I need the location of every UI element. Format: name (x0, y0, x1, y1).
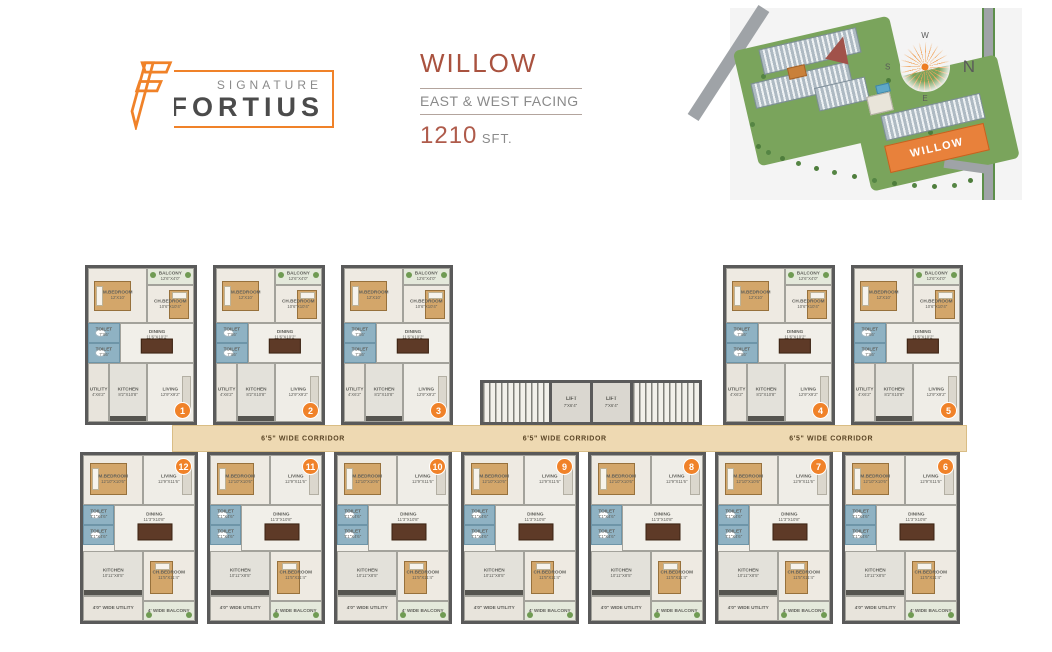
unit-number-badge: 9 (556, 458, 573, 475)
apartment-unit: M.BEDROOM12'X10' BALCONY12'6"X4'0" CH.BE… (85, 265, 197, 425)
kitchen: KITCHEN8'2"X10'8" (109, 363, 147, 422)
room-label: DINING11'6"X10'2" (767, 329, 823, 359)
unit-number-badge: 1 (174, 402, 191, 419)
utility-strip: 4'0" WIDE UTILITY (210, 596, 270, 621)
room-label: DINING11'3"X10'8" (124, 511, 185, 546)
balcony-strip: 4' WIDE BALCONY (143, 601, 195, 621)
kitchen-counter (465, 590, 523, 595)
facing-subtitle: EAST & WEST FACING (420, 93, 579, 109)
room-label: TOILET7'1"X4'6" (341, 508, 364, 522)
room-label: DINING11'6"X10'2" (385, 329, 441, 359)
kitchen: KITCHEN8'2"X10'8" (747, 363, 785, 422)
kitchen-counter (876, 416, 912, 421)
unit-number-badge: 3 (430, 402, 447, 419)
kitchen: KITCHEN10'11"X8'5" (464, 551, 524, 596)
children-bedroom: CH.BEDROOM11'5"X11'4" (270, 551, 322, 601)
room-label: CH.BEDROOM11'5"X11'4" (531, 558, 570, 595)
balcony-strip: 4' WIDE BALCONY (651, 601, 703, 621)
unit-number-badge: 7 (810, 458, 827, 475)
kitchen: KITCHEN10'11"X8'5" (718, 551, 778, 596)
room-label: UTILITY4'X6'2" (91, 371, 106, 415)
toilet: TOILET7'1"X4'6" (718, 525, 749, 545)
toilet: TOILET7'1"X4'6" (591, 505, 622, 525)
toilet: TOILET7'X6' (216, 343, 248, 363)
room-label: M.BEDROOM12'10"X10'6" (90, 461, 136, 498)
compass-icon: W S E N (892, 34, 958, 100)
toilet: TOILET7'1"X4'6" (464, 525, 495, 545)
room-label: KITCHEN8'2"X10'8" (242, 371, 270, 415)
room-label: 4'0" WIDE UTILITY (598, 600, 644, 618)
room-label: KITCHEN8'2"X10'8" (114, 371, 142, 415)
balcony-strip: 4' WIDE BALCONY (524, 601, 576, 621)
apartment-unit: M.BEDROOM12'10"X10'6" LIVING12'9"X11'6" … (842, 452, 960, 624)
room-label: TOILET7'X6' (348, 326, 371, 340)
room-label: TOILET7'1"X4'6" (849, 508, 872, 522)
room-label: KITCHEN8'2"X10'8" (370, 371, 398, 415)
children-bedroom: CH.BEDROOM10'6"X10'4" (147, 285, 194, 324)
room-label: UTILITY4'X6'2" (219, 371, 234, 415)
room-label: DINING11'6"X10'2" (257, 329, 313, 359)
room-label: TOILET7'1"X4'6" (722, 508, 745, 522)
room-label: UTILITY4'X6'2" (347, 371, 362, 415)
room-label: CH.BEDROOM10'6"X10'4" (791, 290, 826, 318)
dining-room: DINING11'3"X10'8" (495, 505, 576, 551)
master-bedroom: M.BEDROOM12'10"X10'6" (718, 455, 778, 505)
room-label: KITCHEN8'2"X10'8" (752, 371, 780, 415)
room-label: 4' WIDE BALCONY (404, 604, 443, 618)
room-label: CH.BEDROOM11'5"X11'4" (277, 558, 316, 595)
room-label: 4' WIDE BALCONY (531, 604, 570, 618)
unit-number-badge: 8 (683, 458, 700, 475)
room-label: CH.BEDROOM10'6"X10'4" (153, 290, 188, 318)
room-label: CH.BEDROOM11'5"X11'4" (658, 558, 697, 595)
dining-room: DINING11'6"X10'2" (120, 323, 194, 363)
room-label: TOILET7'1"X4'6" (87, 508, 110, 522)
dining-room: DINING11'3"X10'8" (749, 505, 830, 551)
room-label: M.BEDROOM12'X10' (861, 275, 906, 317)
room-label: 4'0" WIDE UTILITY (344, 600, 390, 618)
children-bedroom: CH.BEDROOM11'5"X11'4" (524, 551, 576, 601)
room-label: TOILET7'X6' (730, 346, 753, 360)
lift-label: LIFT (606, 396, 617, 402)
unit-number-badge: 11 (302, 458, 319, 475)
room-label: TOILET7'X6' (858, 346, 881, 360)
room-label: 4'0" WIDE UTILITY (217, 600, 263, 618)
room-label: UTILITY4'X6'2" (857, 371, 872, 415)
divider (420, 88, 582, 89)
dining-room: DINING11'3"X10'8" (622, 505, 703, 551)
master-bedroom: M.BEDROOM12'X10' (344, 268, 403, 323)
logo-fortius-text: FORTIUS (171, 92, 325, 123)
room-label: KITCHEN10'11"X8'5" (852, 557, 898, 590)
lift: LIFT 7'X6'4" (552, 383, 589, 422)
room-label: DINING11'3"X10'8" (886, 511, 947, 546)
room-label: BALCONY12'6"X4'0" (919, 271, 954, 283)
apartment-unit: M.BEDROOM12'10"X10'6" LIVING12'9"X11'6" … (207, 452, 325, 624)
room-label: KITCHEN10'11"X8'5" (90, 557, 136, 590)
room-label: UTILITY4'X6'2" (729, 371, 744, 415)
apartment-unit: M.BEDROOM12'10"X10'6" LIVING12'9"X11'6" … (461, 452, 579, 624)
balcony: BALCONY12'6"X4'0" (785, 268, 832, 285)
utility-room: UTILITY4'X6'2" (854, 363, 875, 422)
kitchen-counter (748, 416, 784, 421)
trees (756, 144, 761, 149)
room-label: CH.BEDROOM11'5"X11'4" (785, 558, 824, 595)
balcony-strip: 4' WIDE BALCONY (778, 601, 830, 621)
dining-room: DINING11'3"X10'8" (114, 505, 195, 551)
compass-north-label: N (963, 57, 975, 77)
master-bedroom: M.BEDROOM12'X10' (88, 268, 147, 323)
room-label: BALCONY12'6"X4'0" (281, 271, 316, 283)
toilet: TOILET7'X6' (344, 323, 376, 343)
room-label: CH.BEDROOM11'5"X11'4" (912, 558, 951, 595)
room-label: TOILET7'1"X4'6" (214, 528, 237, 542)
page-title: WILLOW (420, 48, 537, 79)
room-label: M.BEDROOM12'10"X10'6" (344, 461, 390, 498)
children-bedroom: CH.BEDROOM10'6"X10'4" (275, 285, 322, 324)
toilet: TOILET7'X6' (216, 323, 248, 343)
toilet: TOILET7'X6' (726, 343, 758, 363)
dining-room: DINING11'6"X10'2" (886, 323, 960, 363)
compass-center (922, 64, 929, 71)
lift-dimension: 7'X6'4" (564, 403, 578, 408)
toilet: TOILET7'1"X4'6" (464, 505, 495, 525)
balcony-strip: 4' WIDE BALCONY (905, 601, 957, 621)
unit-number-badge: 12 (175, 458, 192, 475)
room-label: M.BEDROOM12'X10' (95, 275, 140, 317)
room-label: DINING11'6"X10'2" (895, 329, 951, 359)
room-label: TOILET7'X6' (348, 346, 371, 360)
room-label: M.BEDROOM12'X10' (733, 275, 778, 317)
compass-east-label: E (922, 94, 927, 103)
toilet: TOILET7'1"X4'6" (845, 525, 876, 545)
room-label: M.BEDROOM12'10"X10'6" (471, 461, 517, 498)
dining-room: DINING11'3"X10'8" (368, 505, 449, 551)
unit-number-badge: 10 (429, 458, 446, 475)
brochure-page: SIGNATURE FORTIUS WILLOW EAST & WEST FAC… (0, 0, 1052, 652)
unit-number-badge: 6 (937, 458, 954, 475)
room-label: M.BEDROOM12'10"X10'6" (852, 461, 898, 498)
room-label: TOILET7'1"X4'6" (341, 528, 364, 542)
apartment-unit: M.BEDROOM12'10"X10'6" LIVING12'9"X11'6" … (80, 452, 198, 624)
toilet: TOILET7'1"X4'6" (210, 505, 241, 525)
master-bedroom: M.BEDROOM12'10"X10'6" (83, 455, 143, 505)
kitchen-counter (338, 590, 396, 595)
room-label: TOILET7'1"X4'6" (722, 528, 745, 542)
kitchen: KITCHEN10'11"X8'5" (83, 551, 143, 596)
room-label: DINING11'3"X10'8" (759, 511, 820, 546)
room-label: DINING11'3"X10'8" (378, 511, 439, 546)
room-label: TOILET7'1"X4'6" (849, 528, 872, 542)
corridor: 6'5" WIDE CORRIDOR 6'5" WIDE CORRIDOR 6'… (172, 425, 967, 452)
kitchen-counter (84, 590, 142, 595)
master-bedroom: M.BEDROOM12'10"X10'6" (464, 455, 524, 505)
utility-room: UTILITY4'X6'2" (88, 363, 109, 422)
dining-room: DINING11'6"X10'2" (758, 323, 832, 363)
kitchen-counter (211, 590, 269, 595)
room-label: KITCHEN8'2"X10'8" (880, 371, 908, 415)
room-label: 4' WIDE BALCONY (785, 604, 824, 618)
divider (420, 114, 582, 115)
utility-strip: 4'0" WIDE UTILITY (591, 596, 651, 621)
room-label: TOILET7'1"X4'6" (214, 508, 237, 522)
master-bedroom: M.BEDROOM12'X10' (726, 268, 785, 323)
kitchen: KITCHEN8'2"X10'8" (875, 363, 913, 422)
toilet: TOILET7'X6' (854, 343, 886, 363)
room-label: M.BEDROOM12'10"X10'6" (598, 461, 644, 498)
master-bedroom: M.BEDROOM12'10"X10'6" (591, 455, 651, 505)
children-bedroom: CH.BEDROOM11'5"X11'4" (651, 551, 703, 601)
dining-room: DINING11'6"X10'2" (376, 323, 450, 363)
apartment-unit: M.BEDROOM12'X10' BALCONY12'6"X4'0" CH.BE… (723, 265, 835, 425)
room-label: 4'0" WIDE UTILITY (852, 600, 898, 618)
room-label: CH.BEDROOM11'5"X11'4" (404, 558, 443, 595)
balcony-strip: 4' WIDE BALCONY (270, 601, 322, 621)
room-label: CH.BEDROOM11'5"X11'4" (150, 558, 189, 595)
room-label: KITCHEN10'11"X8'5" (725, 557, 771, 590)
room-label: TOILET7'1"X4'6" (595, 528, 618, 542)
logo-signature-text: SIGNATURE (217, 78, 322, 92)
children-bedroom: CH.BEDROOM11'5"X11'4" (905, 551, 957, 601)
bottom-unit-row: M.BEDROOM12'10"X10'6" LIVING12'9"X11'6" … (80, 452, 960, 624)
kitchen-counter (719, 590, 777, 595)
fortius-logo-icon (126, 58, 174, 130)
lift-label: LIFT (565, 396, 576, 402)
kitchen: KITCHEN10'11"X8'5" (210, 551, 270, 596)
unit-number-badge: 2 (302, 402, 319, 419)
apartment-unit: M.BEDROOM12'X10' BALCONY12'6"X4'0" CH.BE… (341, 265, 453, 425)
unit-number-badge: 4 (812, 402, 829, 419)
room-label: TOILET7'1"X4'6" (468, 528, 491, 542)
room-label: TOILET7'X6' (220, 346, 243, 360)
kitchen: KITCHEN10'11"X8'5" (337, 551, 397, 596)
children-bedroom: CH.BEDROOM10'6"X10'4" (403, 285, 450, 324)
room-label: TOILET7'X6' (92, 326, 115, 340)
utility-strip: 4'0" WIDE UTILITY (718, 596, 778, 621)
room-label: M.BEDROOM12'X10' (351, 275, 396, 317)
room-label: KITCHEN10'11"X8'5" (217, 557, 263, 590)
room-label: DINING11'3"X10'8" (632, 511, 693, 546)
master-bedroom: M.BEDROOM12'10"X10'6" (337, 455, 397, 505)
utility-strip: 4'0" WIDE UTILITY (845, 596, 905, 621)
utility-strip: 4'0" WIDE UTILITY (337, 596, 397, 621)
balcony: BALCONY12'6"X4'0" (403, 268, 450, 285)
children-bedroom: CH.BEDROOM11'5"X11'4" (143, 551, 195, 601)
room-label: M.BEDROOM12'X10' (223, 275, 268, 317)
toilet: TOILET7'X6' (88, 323, 120, 343)
toilet: TOILET7'1"X4'6" (83, 525, 114, 545)
balcony: BALCONY12'6"X4'0" (275, 268, 322, 285)
toilet: TOILET7'X6' (726, 323, 758, 343)
kitchen: KITCHEN8'2"X10'8" (237, 363, 275, 422)
toilet: TOILET7'1"X4'6" (210, 525, 241, 545)
staircase (633, 383, 699, 422)
corridor-label: 6'5" WIDE CORRIDOR (523, 435, 607, 442)
toilet: TOILET7'X6' (854, 323, 886, 343)
dining-room: DINING11'3"X10'8" (241, 505, 322, 551)
site-map: WILLOW W S E N (730, 8, 1022, 200)
area-text: 1210 SFT. (420, 122, 513, 150)
room-label: TOILET7'1"X4'6" (595, 508, 618, 522)
room-label: 4'0" WIDE UTILITY (471, 600, 517, 618)
room-label: 4' WIDE BALCONY (658, 604, 697, 618)
kitchen: KITCHEN8'2"X10'8" (365, 363, 403, 422)
kitchen-counter (846, 590, 904, 595)
room-label: 4'0" WIDE UTILITY (725, 600, 771, 618)
corridor-label: 6'5" WIDE CORRIDOR (261, 435, 345, 442)
master-bedroom: M.BEDROOM12'10"X10'6" (845, 455, 905, 505)
apartment-unit: M.BEDROOM12'X10' BALCONY12'6"X4'0" CH.BE… (213, 265, 325, 425)
room-label: DINING11'3"X10'8" (505, 511, 566, 546)
master-bedroom: M.BEDROOM12'10"X10'6" (210, 455, 270, 505)
room-label: TOILET7'1"X4'6" (468, 508, 491, 522)
area-unit: SFT. (482, 131, 513, 146)
room-label: KITCHEN10'11"X8'5" (471, 557, 517, 590)
dining-room: DINING11'3"X10'8" (876, 505, 957, 551)
staircase (483, 383, 549, 422)
children-bedroom: CH.BEDROOM10'6"X10'4" (913, 285, 960, 324)
room-label: TOILET7'X6' (220, 326, 243, 340)
utility-strip: 4'0" WIDE UTILITY (464, 596, 524, 621)
apartment-unit: M.BEDROOM12'10"X10'6" LIVING12'9"X11'6" … (715, 452, 833, 624)
room-label: KITCHEN10'11"X8'5" (344, 557, 390, 590)
room-label: M.BEDROOM12'10"X10'6" (725, 461, 771, 498)
compass-south-label: S (885, 63, 890, 72)
lift: LIFT 7'X6'4" (593, 383, 630, 422)
apartment-unit: M.BEDROOM12'10"X10'6" LIVING12'9"X11'6" … (588, 452, 706, 624)
room-label: TOILET7'X6' (858, 326, 881, 340)
room-label: TOILET7'1"X4'6" (87, 528, 110, 542)
room-label: M.BEDROOM12'10"X10'6" (217, 461, 263, 498)
children-bedroom: CH.BEDROOM11'5"X11'4" (397, 551, 449, 601)
willow-building-label: WILLOW (909, 136, 965, 160)
toilet: TOILET7'1"X4'6" (337, 505, 368, 525)
room-label: 4' WIDE BALCONY (912, 604, 951, 618)
room-label: BALCONY12'6"X4'0" (153, 271, 188, 283)
room-label: CH.BEDROOM10'6"X10'4" (281, 290, 316, 318)
utility-room: UTILITY4'X6'2" (216, 363, 237, 422)
apartment-unit: M.BEDROOM12'10"X10'6" LIVING12'9"X11'6" … (334, 452, 452, 624)
stair-lift-core: LIFT 7'X6'4" LIFT 7'X6'4" (480, 380, 702, 425)
children-bedroom: CH.BEDROOM11'5"X11'4" (778, 551, 830, 601)
toilet: TOILET7'1"X4'6" (718, 505, 749, 525)
balcony: BALCONY12'6"X4'0" (913, 268, 960, 285)
top-left-unit-row: M.BEDROOM12'X10' BALCONY12'6"X4'0" CH.BE… (85, 265, 453, 425)
toilet: TOILET7'1"X4'6" (83, 505, 114, 525)
master-bedroom: M.BEDROOM12'X10' (854, 268, 913, 323)
room-label: DINING11'3"X10'8" (251, 511, 312, 546)
balcony-strip: 4' WIDE BALCONY (397, 601, 449, 621)
corridor-label: 6'5" WIDE CORRIDOR (789, 435, 873, 442)
kitchen-counter (366, 416, 402, 421)
room-label: TOILET7'X6' (92, 346, 115, 360)
master-bedroom: M.BEDROOM12'X10' (216, 268, 275, 323)
lift-dimension: 7'X6'4" (604, 403, 618, 408)
utility-room: UTILITY4'X6'2" (726, 363, 747, 422)
kitchen-counter (110, 416, 146, 421)
area-value: 1210 (420, 122, 477, 149)
dining-room: DINING11'6"X10'2" (248, 323, 322, 363)
room-label: TOILET7'X6' (730, 326, 753, 340)
room-label: CH.BEDROOM10'6"X10'4" (409, 290, 444, 318)
room-label: BALCONY12'6"X4'0" (409, 271, 444, 283)
toilet: TOILET7'1"X4'6" (591, 525, 622, 545)
top-right-unit-row: M.BEDROOM12'X10' BALCONY12'6"X4'0" CH.BE… (723, 265, 963, 425)
room-label: DINING11'6"X10'2" (129, 329, 185, 359)
room-label: BALCONY12'6"X4'0" (791, 271, 826, 283)
room-label: KITCHEN10'11"X8'5" (598, 557, 644, 590)
room-label: 4' WIDE BALCONY (150, 604, 189, 618)
utility-room: UTILITY4'X6'2" (344, 363, 365, 422)
kitchen-counter (238, 416, 274, 421)
compass-west-label: W (921, 31, 929, 40)
children-bedroom: CH.BEDROOM10'6"X10'4" (785, 285, 832, 324)
utility-strip: 4'0" WIDE UTILITY (83, 596, 143, 621)
logo-box: SIGNATURE FORTIUS (148, 70, 334, 128)
kitchen-counter (592, 590, 650, 595)
apartment-unit: M.BEDROOM12'X10' BALCONY12'6"X4'0" CH.BE… (851, 265, 963, 425)
room-label: 4' WIDE BALCONY (277, 604, 316, 618)
balcony: BALCONY12'6"X4'0" (147, 268, 194, 285)
toilet: TOILET7'X6' (88, 343, 120, 363)
unit-number-badge: 5 (940, 402, 957, 419)
kitchen: KITCHEN10'11"X8'5" (845, 551, 905, 596)
room-label: CH.BEDROOM10'6"X10'4" (919, 290, 954, 318)
toilet: TOILET7'X6' (344, 343, 376, 363)
kitchen: KITCHEN10'11"X8'5" (591, 551, 651, 596)
toilet: TOILET7'1"X4'6" (845, 505, 876, 525)
toilet: TOILET7'1"X4'6" (337, 525, 368, 545)
room-label: 4'0" WIDE UTILITY (90, 600, 136, 618)
